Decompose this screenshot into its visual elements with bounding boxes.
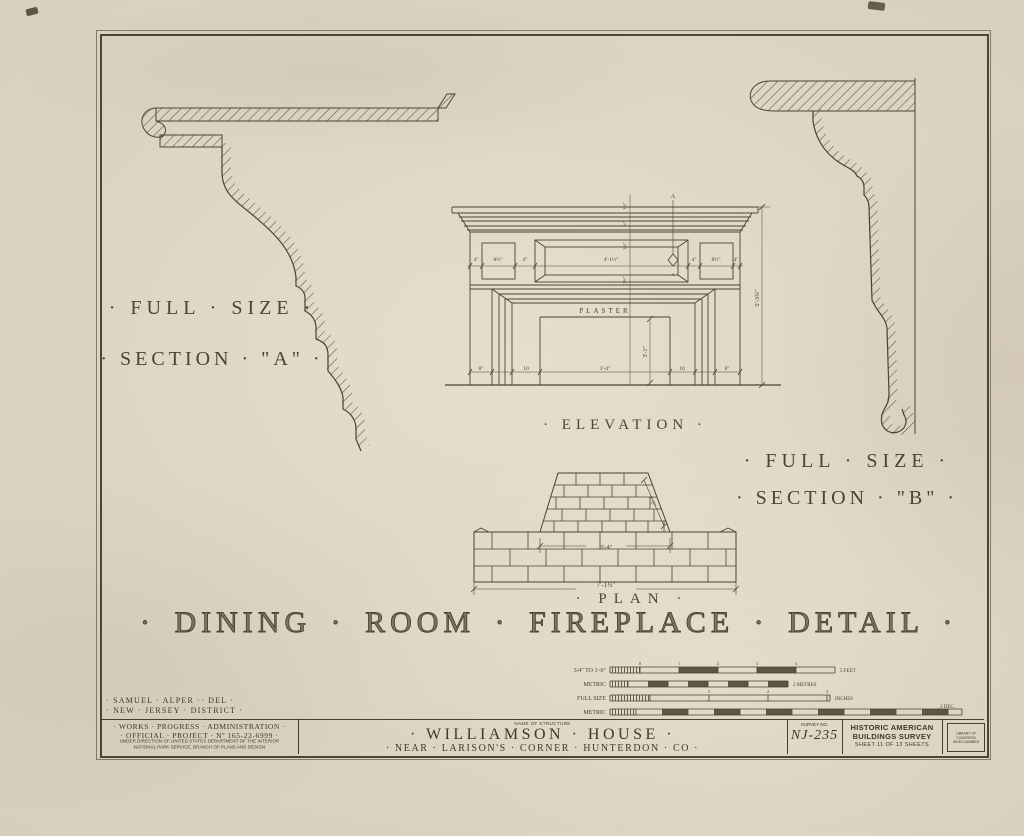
plan-dimension-lines <box>471 477 739 595</box>
elevation-label: · ELEVATION · <box>520 417 730 434</box>
plaster-note: PLASTER <box>579 307 630 315</box>
titleblock-divider <box>942 720 943 754</box>
section-a-label-line2: · SECTION · "A" · <box>92 348 332 371</box>
scale-end-4: 2 DEC. <box>940 705 955 710</box>
chimney-bricks <box>543 473 666 532</box>
scale1-tick-2: 2 <box>717 661 719 666</box>
sheet-title: · DINING · ROOM · FIREPLACE · DETAIL · <box>140 606 900 640</box>
section-marker-diamond <box>668 254 678 266</box>
library-of-congress-box: LIBRARY OF CONGRESS INDEX NUMBER <box>947 723 985 752</box>
dim-center-1: ¾" <box>622 221 627 226</box>
credit-line2: · NEW · JERSEY · DISTRICT · <box>106 706 243 716</box>
drawing-sheet: · FULL · SIZE · · SECTION · "A" · · FULL… <box>0 0 1024 836</box>
section-marker-bottom: A <box>671 272 675 277</box>
mantel-cornice <box>452 207 758 232</box>
section-a-drawing <box>130 80 470 465</box>
dim-plan-overall: 7'-1½" <box>597 581 616 589</box>
dim-frieze-1: 8½" <box>493 256 502 263</box>
survey-no-value: NJ-235 <box>788 728 841 744</box>
wpa-cell: · WORKS · PROGRESS · ADMINISTRATION · · … <box>103 722 296 751</box>
dim-bottom-0: 8" <box>479 366 484 372</box>
scale3-tick-2: 3 <box>826 689 829 694</box>
loc-line2: INDEX NUMBER <box>951 740 982 744</box>
dim-bottom-2: 3'-4" <box>600 366 611 372</box>
dim-frieze-5: 8½" <box>711 256 720 263</box>
dim-bottom-4: 8" <box>725 366 730 372</box>
scale-bar-1 <box>610 667 835 673</box>
dim-frieze-3: 4'-1½" <box>604 256 619 263</box>
dim-plan-inner: 3'-4" <box>600 544 613 551</box>
wpa-line1: · WORKS · PROGRESS · ADMINISTRATION · <box>103 722 296 731</box>
ink-speck <box>868 1 886 11</box>
delineator-credits: · SAMUEL · ALPER ·· DEL · · NEW · JERSEY… <box>106 696 243 716</box>
hearth-base <box>474 532 736 582</box>
section-a-label-line1: · FULL · SIZE · <box>92 297 332 320</box>
scale3-tick-1: 2 <box>767 689 769 694</box>
dim-frieze-6: 4" <box>734 257 739 263</box>
dim-bottom-3: 10 <box>679 366 685 372</box>
dim-frieze-4: 4" <box>692 257 697 263</box>
wpa-line3: UNDER DIRECTION OF UNITED STATES DEPARTM… <box>115 740 285 745</box>
habs-cell: HISTORIC AMERICAN BUILDINGS SURVEY SHEET… <box>843 724 941 750</box>
scale-label-3: FULL SIZE <box>577 696 606 702</box>
scale-bars: 3/4" TO 1'-0" METRIC FULL SIZE METRIC 0 … <box>548 660 980 722</box>
dim-opening-height: 3'-1" <box>643 346 649 358</box>
scale-end-1: 5 FEET <box>840 669 856 674</box>
wpa-line4: NATIONAL PARK SERVICE, BRANCH OF PLANS A… <box>115 746 285 751</box>
plan-drawing: 3'-4" 1'-2" 7'-1½" <box>458 458 758 598</box>
firebox-opening <box>540 317 670 385</box>
dim-frieze-0: 4" <box>474 257 479 263</box>
scale-end-2: 2 METRES <box>793 683 817 688</box>
structure-name-cell: NAME OF STRUCTURE · WILLIAMSON · HOUSE ·… <box>300 721 785 754</box>
credit-line1: · SAMUEL · ALPER ·· DEL · <box>106 696 243 706</box>
loc-line1: LIBRARY OF CONGRESS <box>951 731 982 740</box>
scale-label-1: 3/4" TO 1'-0" <box>574 668 607 674</box>
plan-dimension-text: 3'-4" 1'-2" 7'-1½" <box>597 496 657 589</box>
dim-frieze-2: 4" <box>523 257 528 263</box>
scale-segments <box>648 667 948 715</box>
scale1-tick-0: 0 <box>639 661 642 666</box>
brick-courses <box>474 528 736 582</box>
survey-number-cell: SURVEY NO. NJ-235 <box>788 722 841 744</box>
dim-center-2: 3¾" <box>622 242 627 250</box>
ink-speck <box>25 7 38 17</box>
dim-overall-height: 5'-3¾" <box>754 289 761 307</box>
titleblock-divider <box>298 720 299 754</box>
section-marker-top: A <box>671 194 676 200</box>
habs-sheet-count: SHEET 11 OF 13 SHEETS <box>843 741 941 750</box>
section-a-label: · FULL · SIZE · · SECTION · "A" · <box>92 297 332 371</box>
mantel-shelf-section <box>142 94 455 147</box>
section-b-label-line2: · SECTION · "B" · <box>722 487 972 510</box>
scale1-tick-4: 4 <box>795 661 798 666</box>
structure-location: · NEAR · LARISON'S · CORNER · HUNTERDON … <box>300 743 785 754</box>
scale-label-4: METRIC <box>583 710 606 716</box>
scale1-tick-3: 3 <box>756 661 759 666</box>
scale-subdivisions <box>610 667 650 715</box>
scale1-tick-1: 1 <box>678 661 680 666</box>
scale-label-2: METRIC <box>583 682 606 688</box>
dim-center-3: 1¾" <box>622 276 627 284</box>
scale3-tick-0: 1 <box>708 689 710 694</box>
title-block: · WORKS · PROGRESS · ADMINISTRATION · · … <box>101 719 984 754</box>
scale-end-3: INCHES <box>835 697 853 702</box>
dim-bottom-1: 10 <box>523 366 529 372</box>
dim-center-0: 1¾" <box>622 202 627 210</box>
habs-line2: BUILDINGS SURVEY <box>843 733 941 742</box>
structure-name: · WILLIAMSON · HOUSE · <box>300 726 785 743</box>
